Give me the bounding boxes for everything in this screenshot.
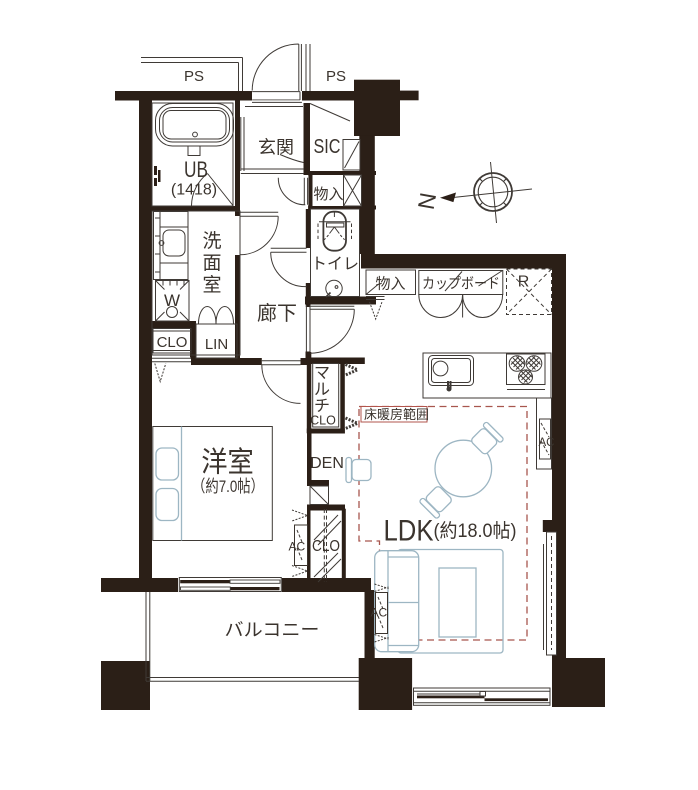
svg-text:AC: AC (289, 540, 306, 554)
svg-text:PS: PS (326, 68, 346, 85)
svg-text:LDK: LDK (384, 515, 434, 548)
svg-text:ル: ル (314, 382, 330, 399)
svg-text:LIN: LIN (205, 336, 228, 353)
svg-text:洗: 洗 (202, 230, 221, 252)
svg-text:トイレ: トイレ (311, 256, 359, 273)
svg-text:AC: AC (371, 606, 388, 620)
svg-text:CLO: CLO (310, 414, 336, 428)
svg-text:SIC: SIC (314, 136, 341, 158)
svg-text:マ: マ (314, 365, 330, 382)
svg-text:CLO: CLO (312, 538, 340, 555)
svg-text:AC: AC (539, 437, 555, 449)
svg-text:DEN: DEN (310, 455, 344, 472)
svg-text:(1418): (1418) (171, 182, 217, 199)
svg-text:物入: 物入 (313, 186, 343, 203)
svg-text:チ: チ (314, 398, 330, 415)
svg-text:物入: 物入 (375, 276, 405, 293)
svg-text:PS: PS (184, 68, 204, 85)
svg-text:廊下: 廊下 (257, 302, 297, 325)
svg-text:バルコニー: バルコニー (225, 620, 320, 640)
svg-text:室: 室 (202, 274, 221, 296)
svg-text:CLO: CLO (157, 334, 188, 351)
svg-text:床暖房範囲: 床暖房範囲 (364, 407, 429, 422)
svg-text:(約18.0帖): (約18.0帖) (434, 520, 517, 542)
svg-text:玄関: 玄関 (258, 138, 294, 158)
svg-text:面: 面 (202, 253, 221, 274)
svg-text:カップボード: カップボード (422, 276, 500, 293)
svg-text:（約7.0帖）: （約7.0帖） (192, 477, 264, 496)
svg-text:洋室: 洋室 (201, 447, 254, 479)
svg-text:UB: UB (184, 157, 208, 182)
svg-text:W: W (164, 291, 180, 310)
svg-text:R: R (518, 274, 530, 291)
